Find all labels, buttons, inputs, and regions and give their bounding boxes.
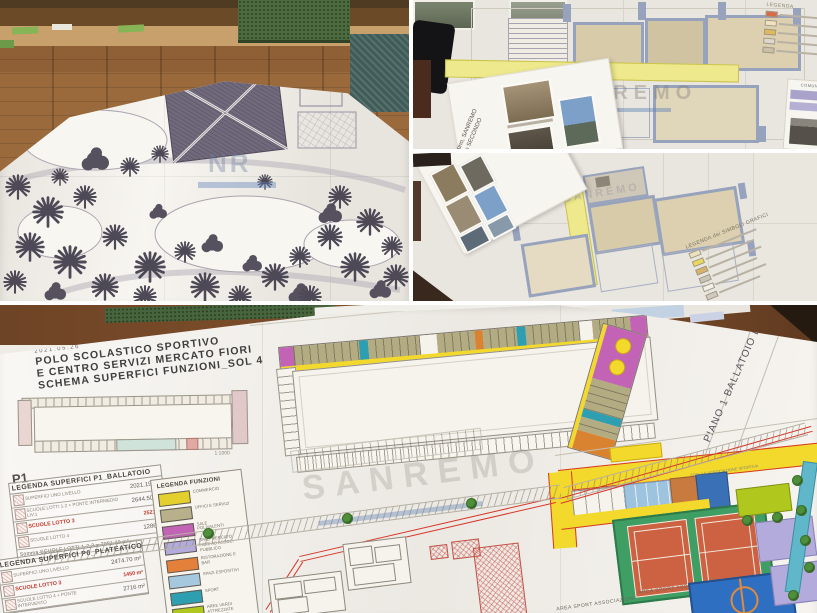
green-tape: [12, 27, 38, 35]
label-bar: [779, 14, 817, 20]
document-photo: [789, 118, 817, 146]
tree-icon: [772, 512, 783, 523]
table-wood: [413, 60, 431, 118]
swatch: [763, 38, 775, 45]
wall-stub: [718, 2, 726, 20]
swatch: [765, 20, 777, 27]
label-bar: [779, 23, 817, 29]
swatch: [765, 11, 777, 18]
swatch: [762, 47, 774, 54]
wall-stub: [758, 126, 766, 142]
hatch-swatch: [0, 571, 12, 583]
tree-icon: [203, 528, 214, 539]
red-hatch-small: [451, 538, 481, 559]
label-bar: [778, 32, 817, 38]
photo-thumbnail: [558, 94, 601, 149]
chair-fabric: [350, 34, 409, 112]
tree-icon: [796, 505, 807, 516]
tree-icon: [342, 513, 353, 524]
tree-icon: [792, 475, 803, 486]
swatch: [166, 557, 199, 574]
document-bar: [789, 102, 817, 113]
wall-stub: [638, 2, 646, 20]
photo-garden-site-plan: NR: [0, 0, 409, 301]
document-bar: [790, 90, 817, 102]
photo-floorplan-lower: SANREMO GES, San Martino, SANREMO Pianta…: [413, 153, 817, 301]
photo-floorplan-upper: SANREMO Martino, SANREMO Piano SECONDO L…: [413, 0, 817, 149]
stair-hatch: [508, 18, 568, 65]
swatch: [168, 573, 201, 590]
label-bar: [777, 41, 817, 47]
room: [348, 546, 374, 567]
swatch: [764, 29, 776, 36]
key-plan: 1:1000: [17, 388, 246, 464]
photo-collage: NR SANREMO Martino, SANREMO: [0, 0, 817, 613]
scale-label: 1:1000: [214, 450, 229, 456]
swatch: [160, 506, 193, 523]
tree-icon: [466, 498, 477, 509]
hatch-swatch: [14, 508, 26, 520]
hatch-swatch: [17, 536, 29, 548]
green-tape: [0, 40, 14, 48]
key-plan-cap: [18, 400, 33, 446]
key-plan-red-seg: [186, 438, 198, 450]
red-hatch-small: [429, 544, 449, 560]
room: [521, 234, 597, 298]
key-plan-teal-seg: [116, 438, 176, 451]
hatch-swatch: [2, 585, 14, 597]
white-tape: [52, 24, 72, 30]
legend-sheet: LEGENDA: [760, 2, 817, 89]
watermark: NR: [208, 148, 252, 179]
red-hatch-strip: [473, 542, 527, 613]
yellow-circle: [607, 357, 627, 377]
legend-item: [762, 47, 817, 58]
masterplan-sheet: 2021.05.26 POLO SCOLASTICO SPORTIVO E CE…: [0, 305, 817, 613]
room-cluster: [342, 536, 411, 590]
wall-stub: [563, 4, 571, 22]
wall-stub: [738, 182, 747, 199]
swatch: [158, 490, 191, 507]
watermark-bar: [198, 182, 276, 188]
swatch: [170, 589, 203, 606]
tree-icon: [800, 535, 811, 546]
label-bar: [776, 50, 817, 56]
table-corner-dark: [413, 153, 451, 167]
room: [374, 544, 402, 563]
room: [645, 18, 706, 69]
table-edge-dark: [413, 181, 421, 241]
green-tape: [118, 24, 144, 32]
hatch-swatch: [4, 599, 16, 611]
room-outline: [595, 244, 659, 293]
center-circle: [729, 585, 760, 613]
room: [352, 563, 396, 586]
tree-icon: [804, 562, 815, 573]
key-plan-cap: [231, 390, 248, 444]
document-card: COMUNE: [783, 78, 817, 149]
room: [303, 576, 336, 594]
swatch: [172, 606, 205, 613]
swatch: [705, 291, 718, 301]
hatch-swatch: [12, 494, 24, 506]
photo-masterplan: 2021.05.26 POLO SCOLASTICO SPORTIVO E CE…: [0, 305, 817, 613]
document-header: COMUNE: [788, 81, 817, 89]
yellow-circle: [613, 336, 633, 356]
chair-back: [238, 0, 350, 43]
photo-thumbnail: [506, 125, 557, 149]
room: [277, 596, 309, 613]
hatch-swatch: [15, 522, 27, 534]
booklet-title: Martino, SANREMO Piano SECONDO: [452, 108, 487, 149]
tree-icon: [742, 515, 753, 526]
tree-icon: [788, 590, 799, 601]
